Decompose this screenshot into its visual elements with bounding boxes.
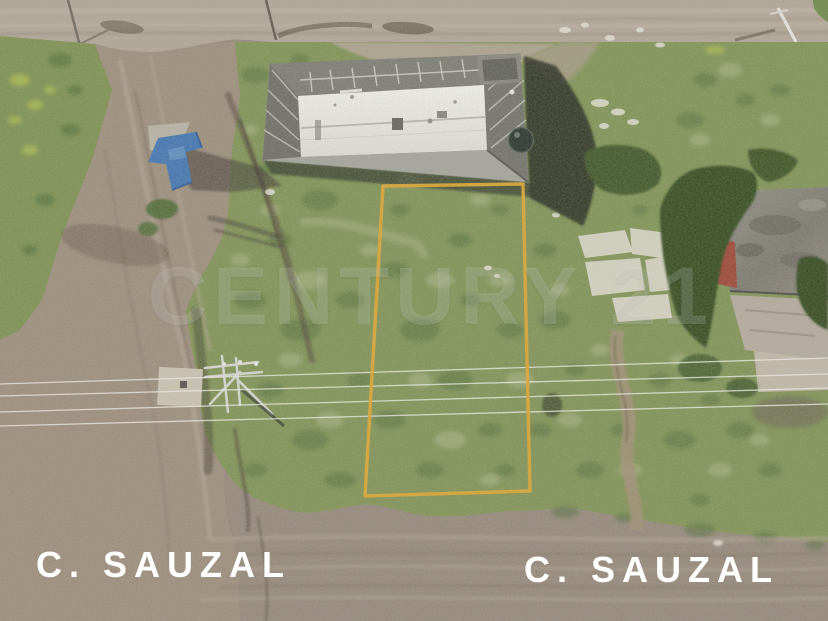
street-label-right: C. SAUZAL: [524, 552, 779, 588]
photo-grain: [0, 0, 828, 621]
aerial-photo: CENTURY 21 C. SAUZAL C. SAUZAL: [0, 0, 828, 621]
street-label-left: C. SAUZAL: [36, 547, 291, 583]
aerial-photo-scene: [0, 0, 828, 621]
